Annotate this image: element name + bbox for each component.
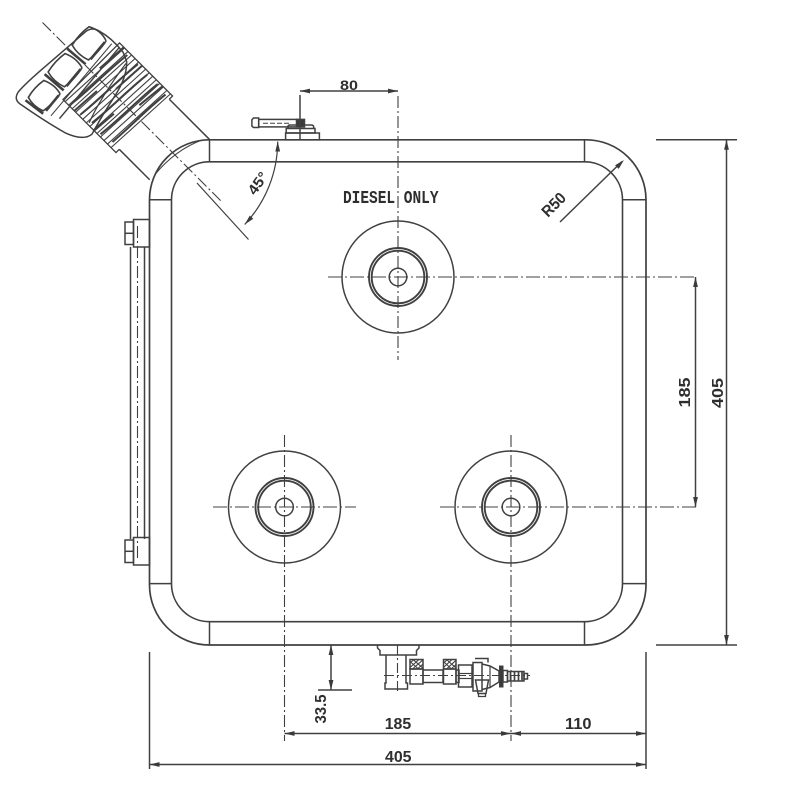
svg-text:DIESEL ONLY: DIESEL ONLY [343,188,439,209]
svg-text:80: 80 [340,77,358,93]
svg-text:110: 110 [565,716,592,733]
svg-text:405: 405 [385,749,412,766]
svg-text:33.5: 33.5 [313,694,330,723]
svg-text:45°: 45° [245,169,272,198]
svg-text:405: 405 [710,378,727,408]
svg-text:185: 185 [677,377,694,407]
svg-text:185: 185 [385,716,412,733]
